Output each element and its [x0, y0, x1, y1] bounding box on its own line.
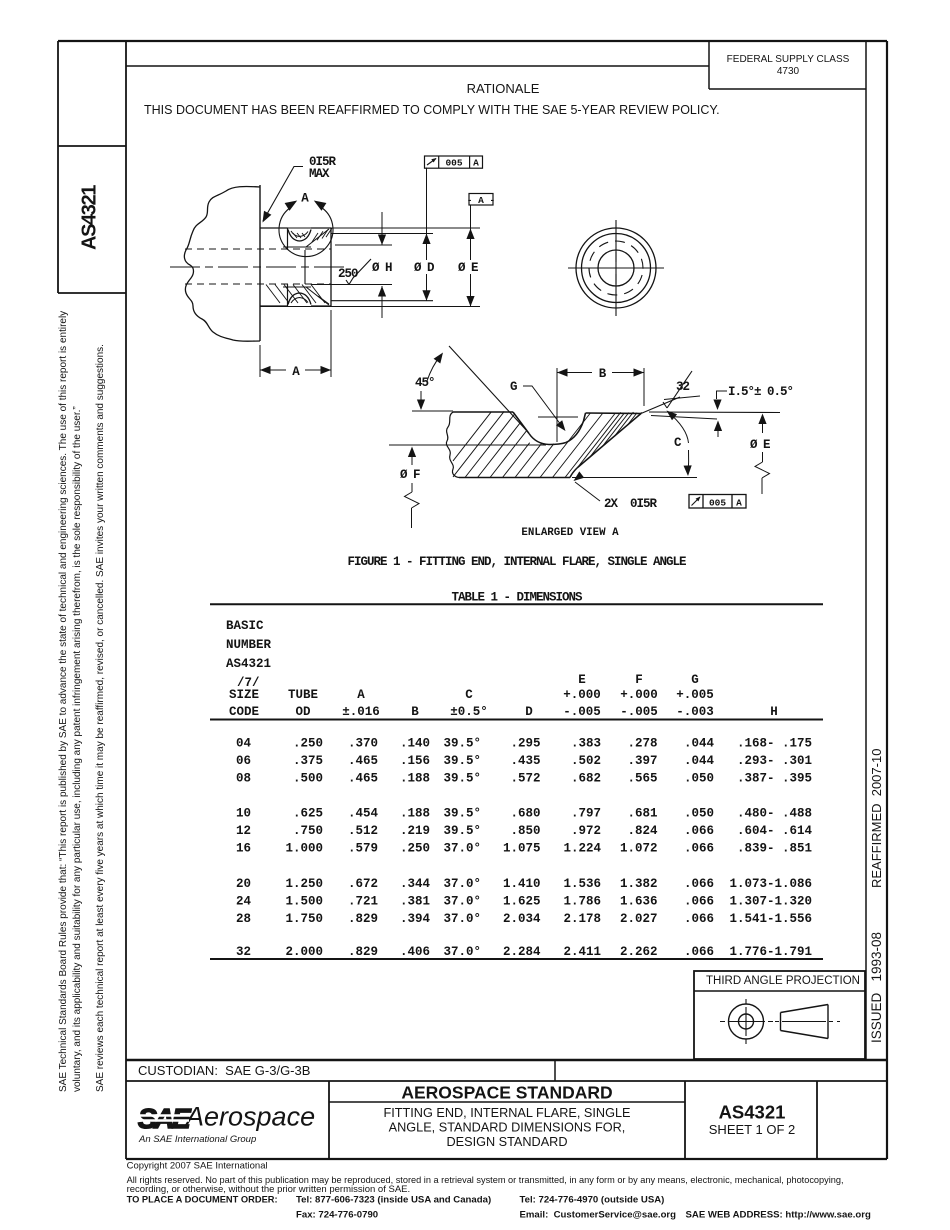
svg-text:12: 12 — [236, 824, 251, 838]
svg-text:FEDERAL SUPPLY CLASS: FEDERAL SUPPLY CLASS — [727, 54, 850, 65]
svg-text:±0.5°: ±0.5° — [450, 705, 488, 719]
svg-text:.156: .156 — [400, 754, 430, 768]
svg-text:A: A — [301, 192, 309, 206]
svg-text:Ø D: Ø D — [414, 261, 435, 275]
svg-text:SAE WEB ADDRESS: http://www.sa: SAE WEB ADDRESS: http://www.sae.org — [686, 1210, 871, 1221]
svg-text:24: 24 — [236, 895, 252, 909]
svg-text:.375: .375 — [293, 754, 323, 768]
svg-text:.140: .140 — [400, 737, 430, 751]
svg-text:.829: .829 — [348, 912, 378, 926]
svg-text:.454: .454 — [348, 807, 379, 821]
svg-text:NUMBER: NUMBER — [226, 638, 272, 652]
svg-text:005: 005 — [709, 498, 726, 509]
svg-text:39.5°: 39.5° — [443, 807, 481, 821]
svg-text:Ø E: Ø E — [458, 261, 478, 275]
svg-text:2.000: 2.000 — [285, 945, 323, 959]
svg-text:REAFFIRMED 2007-10: REAFFIRMED 2007-10 — [869, 749, 884, 888]
svg-text:32: 32 — [236, 945, 251, 959]
svg-text:28: 28 — [236, 912, 251, 926]
svg-text:37.0°: 37.0° — [443, 945, 481, 959]
svg-text:.044: .044 — [684, 737, 715, 751]
svg-text:10: 10 — [236, 807, 251, 821]
svg-text:1.073-1.086: 1.073-1.086 — [729, 877, 812, 891]
svg-text:+.005: +.005 — [676, 688, 714, 702]
svg-text:.465: .465 — [348, 754, 378, 768]
svg-text:.381: .381 — [400, 895, 430, 909]
svg-text:37.0°: 37.0° — [443, 842, 481, 856]
svg-text:1.636: 1.636 — [620, 895, 658, 909]
svg-text:AS4321: AS4321 — [226, 657, 271, 671]
svg-text:1.250: 1.250 — [285, 877, 323, 891]
svg-text:.604- .614: .604- .614 — [737, 824, 813, 838]
svg-text:08: 08 — [236, 772, 251, 786]
svg-text:Ø F: Ø F — [400, 468, 420, 482]
svg-text:.480- .488: .480- .488 — [737, 807, 812, 821]
svg-text:.278: .278 — [627, 737, 657, 751]
svg-text:RATIONALE: RATIONALE — [467, 81, 540, 96]
svg-text:Fax: 724-776-0790: Fax: 724-776-0790 — [296, 1210, 378, 1221]
svg-text:39.5°: 39.5° — [443, 824, 481, 838]
svg-text:AS4321: AS4321 — [79, 185, 101, 250]
svg-text:.512: .512 — [348, 824, 378, 838]
svg-text:An SAE International Group: An SAE International Group — [138, 1134, 256, 1145]
svg-text:.850: .850 — [510, 824, 540, 838]
svg-text:16: 16 — [236, 842, 251, 856]
svg-text:Tel: 724-776-4970 (outside USA: Tel: 724-776-4970 (outside USA) — [520, 1195, 665, 1206]
svg-text:39.5°: 39.5° — [443, 772, 481, 786]
svg-text:250: 250 — [338, 267, 358, 281]
svg-text:A: A — [473, 158, 479, 169]
svg-text:voluntary, and its applicabili: voluntary, and its applicability and sui… — [72, 406, 83, 1092]
svg-text:D: D — [525, 705, 533, 719]
svg-text:ENLARGED VIEW A: ENLARGED VIEW A — [521, 527, 619, 539]
svg-text:.682: .682 — [571, 772, 601, 786]
svg-text:.500: .500 — [293, 772, 323, 786]
svg-text:THIRD ANGLE PROJECTION: THIRD ANGLE PROJECTION — [706, 975, 860, 987]
svg-text:1.075: 1.075 — [503, 842, 541, 856]
svg-text:SHEET 1 OF 2: SHEET 1 OF 2 — [709, 1122, 795, 1137]
svg-text:H: H — [770, 705, 778, 719]
svg-text:ISSUED 1993-08: ISSUED 1993-08 — [869, 932, 884, 1043]
svg-text:1.541-1.556: 1.541-1.556 — [729, 912, 812, 926]
svg-text:39.5°: 39.5° — [443, 737, 481, 751]
svg-text:04: 04 — [236, 737, 252, 751]
svg-text:.435: .435 — [510, 754, 540, 768]
svg-text:Ø E: Ø E — [750, 438, 770, 452]
svg-text:.370: .370 — [348, 737, 378, 751]
svg-text:.750: .750 — [293, 824, 323, 838]
svg-text:FITTING END, INTERNAL FLARE, S: FITTING END, INTERNAL FLARE, SINGLE — [384, 1106, 631, 1120]
svg-text:2.411: 2.411 — [563, 945, 601, 959]
svg-text:1.307-1.320: 1.307-1.320 — [729, 895, 812, 909]
svg-text:2.284: 2.284 — [503, 945, 541, 959]
svg-text:1.382: 1.382 — [620, 877, 658, 891]
svg-text:-.003: -.003 — [676, 705, 714, 719]
svg-text:4730: 4730 — [777, 66, 800, 77]
svg-text:MAX: MAX — [309, 167, 330, 181]
svg-text:2X 0I5R: 2X 0I5R — [604, 497, 658, 511]
svg-text:AEROSPACE STANDARD: AEROSPACE STANDARD — [401, 1083, 612, 1103]
svg-text:.050: .050 — [684, 807, 714, 821]
svg-text:CODE: CODE — [229, 705, 259, 719]
svg-text:G: G — [691, 673, 699, 687]
svg-text:.579: .579 — [348, 842, 378, 856]
svg-text:AS4321: AS4321 — [719, 1102, 786, 1123]
svg-text:1.410: 1.410 — [503, 877, 541, 891]
svg-text:06: 06 — [236, 754, 251, 768]
svg-text:.797: .797 — [571, 807, 601, 821]
svg-text:1.750: 1.750 — [285, 912, 323, 926]
svg-text:.168- .175: .168- .175 — [737, 737, 812, 751]
svg-text:32: 32 — [676, 380, 690, 394]
svg-text:.672: .672 — [348, 877, 378, 891]
svg-text:.188: .188 — [400, 807, 430, 821]
svg-text:A: A — [357, 688, 365, 702]
svg-text:+.000: +.000 — [563, 688, 601, 702]
svg-text:.572: .572 — [510, 772, 540, 786]
svg-text:.502: .502 — [571, 754, 601, 768]
svg-text:.681: .681 — [627, 807, 657, 821]
svg-text:.625: .625 — [293, 807, 323, 821]
svg-text:.680: .680 — [510, 807, 540, 821]
svg-text:.829: .829 — [348, 945, 378, 959]
svg-text:2.262: 2.262 — [620, 945, 658, 959]
svg-text:.383: .383 — [571, 737, 601, 751]
svg-text:1.786: 1.786 — [563, 895, 601, 909]
svg-text:SAE Technical Standards Board: SAE Technical Standards Board Rules prov… — [58, 311, 69, 1092]
svg-text:2.034: 2.034 — [503, 912, 541, 926]
svg-text:.066: .066 — [684, 877, 714, 891]
svg-text:B: B — [411, 705, 419, 719]
svg-text:.394: .394 — [400, 912, 431, 926]
svg-text:.188: .188 — [400, 772, 430, 786]
svg-text:1.536: 1.536 — [563, 877, 601, 891]
svg-text:SIZE: SIZE — [229, 688, 259, 702]
svg-text:.066: .066 — [684, 895, 714, 909]
svg-text:THIS DOCUMENT HAS BEEN REAFFIR: THIS DOCUMENT HAS BEEN REAFFIRMED TO COM… — [144, 103, 720, 117]
svg-text:.344: .344 — [400, 877, 431, 891]
svg-text:.824: .824 — [627, 824, 658, 838]
svg-text:.250: .250 — [293, 737, 323, 751]
svg-text:ANGLE, STANDARD DIMENSIONS FOR: ANGLE, STANDARD DIMENSIONS FOR, — [389, 1121, 626, 1135]
svg-text:.465: .465 — [348, 772, 378, 786]
svg-text:TO PLACE A DOCUMENT ORDER:: TO PLACE A DOCUMENT ORDER: — [127, 1195, 278, 1205]
svg-text:1.625: 1.625 — [503, 895, 541, 909]
svg-text:Email: CustomerService@sae.or: Email: CustomerService@sae.org — [520, 1210, 677, 1221]
svg-text:.066: .066 — [684, 912, 714, 926]
svg-text:37.0°: 37.0° — [443, 912, 481, 926]
svg-text:BASIC: BASIC — [226, 619, 264, 633]
svg-text:20: 20 — [236, 877, 251, 891]
svg-text:G: G — [510, 380, 517, 394]
svg-text:TABLE 1 - DIMENSIONS: TABLE 1 - DIMENSIONS — [451, 591, 583, 605]
svg-text:1.072: 1.072 — [620, 842, 658, 856]
svg-text:37.0°: 37.0° — [443, 895, 481, 909]
svg-text:SAE reviews each technical rep: SAE reviews each technical report at lea… — [95, 344, 106, 1092]
svg-text:E: E — [578, 673, 586, 687]
svg-text:-.005: -.005 — [620, 705, 658, 719]
svg-text:.050: .050 — [684, 772, 714, 786]
svg-text:OD: OD — [295, 705, 311, 719]
svg-text:.066: .066 — [684, 945, 714, 959]
svg-text:45°: 45° — [415, 376, 435, 390]
svg-text:FIGURE 1 - FITTING END, INTERN: FIGURE 1 - FITTING END, INTERNAL FLARE, … — [347, 555, 686, 569]
svg-text:1.500: 1.500 — [285, 895, 323, 909]
svg-text:Tel: 877-606-7323 (inside USA: Tel: 877-606-7323 (inside USA and Canada… — [296, 1195, 491, 1206]
svg-text:.387- .395: .387- .395 — [737, 772, 812, 786]
svg-text:+.000: +.000 — [620, 688, 658, 702]
svg-text:.406: .406 — [400, 945, 430, 959]
svg-text:Ø H: Ø H — [372, 261, 392, 275]
svg-text:1.776-1.791: 1.776-1.791 — [729, 945, 812, 959]
svg-text:F: F — [635, 673, 643, 687]
svg-text:A: A — [736, 498, 742, 509]
svg-text:.839- .851: .839- .851 — [737, 842, 812, 856]
svg-text:- A -: - A - — [467, 195, 496, 206]
svg-text:Aerospace: Aerospace — [184, 1102, 315, 1132]
svg-text:005: 005 — [445, 158, 462, 169]
svg-text:37.0°: 37.0° — [443, 877, 481, 891]
svg-text:Copyright 2007 SAE Internation: Copyright 2007 SAE International — [127, 1161, 268, 1172]
svg-text:39.5°: 39.5° — [443, 754, 481, 768]
svg-text:.721: .721 — [348, 895, 378, 909]
svg-text:I.5°± 0.5°: I.5°± 0.5° — [728, 385, 793, 399]
svg-text:.293- .301: .293- .301 — [737, 754, 812, 768]
svg-text:.066: .066 — [684, 824, 714, 838]
svg-text:.972: .972 — [571, 824, 601, 838]
svg-text:C: C — [465, 688, 473, 702]
svg-text:DESIGN STANDARD: DESIGN STANDARD — [446, 1135, 567, 1149]
svg-text:TUBE: TUBE — [288, 688, 318, 702]
svg-text:CUSTODIAN: SAE G-3/G-3B: CUSTODIAN: SAE G-3/G-3B — [138, 1063, 310, 1078]
svg-text:2.178: 2.178 — [563, 912, 601, 926]
svg-text:1.000: 1.000 — [285, 842, 323, 856]
svg-text:.219: .219 — [400, 824, 430, 838]
svg-text:.397: .397 — [627, 754, 657, 768]
svg-text:.565: .565 — [627, 772, 657, 786]
svg-text:.250: .250 — [400, 842, 430, 856]
svg-text:.044: .044 — [684, 754, 715, 768]
svg-text:.295: .295 — [510, 737, 540, 751]
svg-text:SAE: SAE — [138, 1103, 192, 1134]
svg-text:1.224: 1.224 — [563, 842, 601, 856]
svg-text:.066: .066 — [684, 842, 714, 856]
svg-text:±.016: ±.016 — [342, 705, 380, 719]
svg-text:-.005: -.005 — [563, 705, 601, 719]
svg-text:2.027: 2.027 — [620, 912, 658, 926]
